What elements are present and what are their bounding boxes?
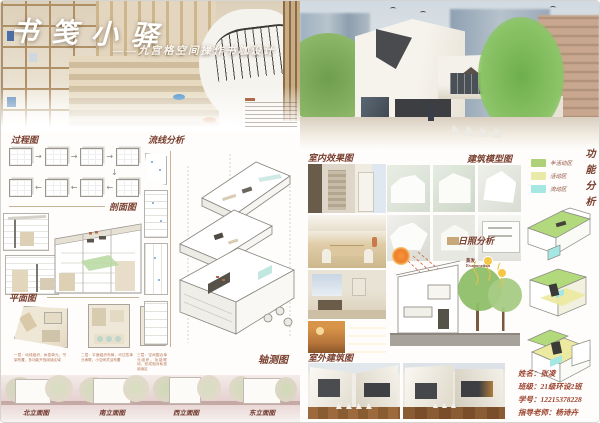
legend-label: 半活动区: [550, 159, 572, 167]
massing-cube-8: [9, 179, 32, 197]
window: [364, 383, 390, 397]
bollard-row: [433, 403, 463, 408]
interior-photo-5: [348, 321, 386, 353]
section-drawing-label: 剖面图: [109, 200, 136, 213]
circulation-plan-4: [144, 301, 168, 345]
model-shape: [439, 173, 471, 203]
dining-table: [330, 245, 364, 256]
plan-table: [106, 336, 112, 342]
interior-ceiling: [308, 215, 386, 231]
legend-swatch-yellow: [531, 172, 546, 180]
massing-cube-5: [116, 179, 139, 197]
wood-floor: [308, 310, 386, 319]
elevation-label-south: 南立面图: [99, 407, 125, 417]
massing-cube-7: [45, 179, 68, 197]
artwork: [352, 278, 366, 296]
lamp-glow: [316, 327, 324, 335]
legend-swatch-green: [531, 159, 546, 167]
legend-item: 活动区: [531, 169, 572, 182]
credit-class: 班级：21级环设2班: [518, 380, 582, 393]
exterior-photo-2: [403, 363, 505, 419]
massing-cube-1: [9, 148, 32, 166]
arrow-right-icon: →: [106, 153, 113, 161]
function-axon-2: [522, 264, 596, 322]
bird: [420, 11, 426, 15]
legend-swatch-cyan: [531, 185, 546, 193]
arrow-left-icon: ←: [35, 184, 42, 192]
process-diagram-label: 过程图: [11, 133, 38, 146]
section-sketch-main: [53, 221, 143, 295]
legend-item: 流动区: [531, 182, 572, 195]
process-row-2: ← ← ←: [9, 179, 139, 197]
function-legend: 半活动区 活动区 流动区: [531, 156, 572, 195]
window-view: [312, 274, 342, 296]
left-panel: 书笺小驿 ——九宫格空间操作书咖设计 过程图 流线分析 → → → ↓ ← ← …: [1, 1, 300, 422]
interior-photo-3: [308, 270, 386, 319]
massing-cube-6: [80, 179, 103, 197]
circulation-analysis-label: 流线分析: [148, 133, 184, 146]
sun-annotation: 蒸发 Evaporation: [466, 258, 490, 268]
window: [318, 379, 340, 397]
person: [372, 237, 377, 247]
interior-render-label: 室内效果图: [308, 151, 353, 164]
window: [415, 383, 437, 399]
design-statement-text: [245, 99, 297, 127]
person: [428, 105, 434, 121]
bollard: [433, 403, 438, 408]
interior-photo-2: [308, 215, 386, 268]
plan-room: [42, 330, 60, 342]
legend-label: 流动区: [550, 185, 567, 193]
elevation-label-east: 东立面图: [249, 407, 275, 417]
book-white: [29, 53, 37, 62]
model-shape: [391, 175, 425, 203]
arrow-right-icon: →: [35, 153, 42, 161]
section-wall: [36, 264, 38, 292]
floor-plan-2: [88, 304, 130, 348]
ground-plaza: [300, 117, 599, 151]
circulation-plan-2: [144, 190, 168, 238]
poster-board: 书笺小驿 ——九宫格空间操作书咖设计 过程图 流线分析 → → → ↓ ← ← …: [0, 0, 600, 423]
vertical-divider: [170, 151, 171, 347]
plan-caption-3: 三层：空间围合单元组织，功能联动，形成相对私密阅读区: [137, 353, 167, 371]
process-row-1: → → →: [9, 148, 139, 166]
function-axon-1: [522, 206, 596, 262]
tree: [123, 375, 149, 402]
model-photos-label: 建筑模型图: [467, 152, 512, 165]
sun-annotation-en: Evaporation: [466, 263, 490, 268]
interior-photo-4: [308, 321, 345, 353]
elevation-label-west: 西立面图: [173, 407, 199, 417]
chair: [322, 249, 331, 263]
tree: [45, 375, 73, 402]
plan-caption-1: 一层：动线组织，休息单元，书架布置，多功能开放阅读区域: [14, 353, 66, 362]
model-photo-2: [433, 165, 476, 212]
plan-table: [115, 336, 121, 342]
section-furniture: [20, 232, 34, 246]
elevation-strip: 北立面图 南立面图 西立面图 东立面图: [1, 375, 300, 422]
model-shape: [483, 171, 516, 203]
floor-plan-1: [14, 306, 68, 348]
plan-room: [110, 310, 124, 322]
bollard: [442, 403, 447, 408]
credit-advisor: 指导老师：杨诗卉: [518, 406, 582, 419]
arrow-right-icon: →: [71, 153, 78, 161]
plan-stair: [19, 312, 37, 332]
bollard: [356, 403, 362, 409]
circulation-plan-1: [145, 153, 167, 185]
tree: [197, 375, 221, 401]
credit-name: 姓名：张凌: [518, 367, 582, 380]
exploded-axonometric: [172, 148, 299, 353]
elevation-west: [169, 377, 201, 404]
model-photo-3: [478, 165, 521, 212]
exterior-render-main: [300, 1, 599, 151]
divider-line: [47, 297, 139, 298]
sun-analysis-diagram: [388, 245, 522, 349]
axonometric-label: 轴测图: [258, 351, 288, 366]
bollard: [366, 403, 372, 409]
bollard: [346, 403, 352, 409]
poster-subtitle: ——九宫格空间操作书咖设计: [113, 43, 276, 58]
massing-cube-4: [116, 148, 139, 166]
model-wood-part: [447, 237, 459, 245]
floor-plan-label: 平面图: [9, 291, 36, 304]
model-photo-1: [387, 165, 430, 212]
exterior-photo-1: [308, 363, 400, 419]
section-wall: [14, 218, 16, 248]
massing-cube-3: [80, 148, 103, 166]
plan-room: [92, 308, 106, 326]
wood-deck: [403, 407, 505, 419]
credits-block: 姓名：张凌 班级：21级环设2班 学号：12215378228 指导老师：杨诗卉: [518, 367, 582, 419]
hero-interior-photo: 书笺小驿 ——九宫格空间操作书咖设计: [1, 1, 300, 132]
bollard-row: [336, 403, 372, 409]
window-warm-glow: [461, 381, 493, 397]
plan-seating: [94, 334, 124, 344]
interior-stair: [328, 170, 346, 210]
plan-room: [44, 312, 62, 324]
interior-photo-1: [308, 164, 386, 213]
elevation-label-north: 北立面图: [23, 407, 49, 417]
bollard: [336, 403, 342, 409]
bird: [550, 6, 556, 10]
legend-item: 半活动区: [531, 156, 572, 169]
section-sketch-2: [5, 255, 59, 295]
circulation-plan-3: [144, 243, 168, 295]
bird: [390, 7, 396, 11]
legend-label: 活动区: [550, 172, 567, 180]
section-furniture: [12, 270, 28, 292]
plan-table: [97, 336, 103, 342]
massing-cube-2: [45, 148, 68, 166]
design-statement-lead: [245, 98, 255, 101]
section-roof: [8, 215, 46, 220]
arrow-down-icon: ↓: [111, 169, 118, 177]
section-sketch-1: [3, 213, 49, 251]
section-furniture: [40, 278, 54, 290]
divider-line: [9, 206, 105, 207]
plan-caption-2: 二层：平面组织布局，可达性单元串联，小空间灵活布置: [81, 353, 133, 362]
arrow-left-icon: ←: [71, 184, 78, 192]
interior-doorway: [358, 172, 374, 212]
arrow-left-icon: ←: [106, 184, 113, 192]
chair: [364, 249, 373, 263]
credit-student-id: 学号：12215378228: [518, 393, 582, 406]
right-panel: 室内效果图 建筑模型图: [300, 1, 599, 422]
tree: [275, 377, 297, 402]
model-shelf-line: [488, 227, 512, 229]
bollard: [451, 403, 456, 408]
